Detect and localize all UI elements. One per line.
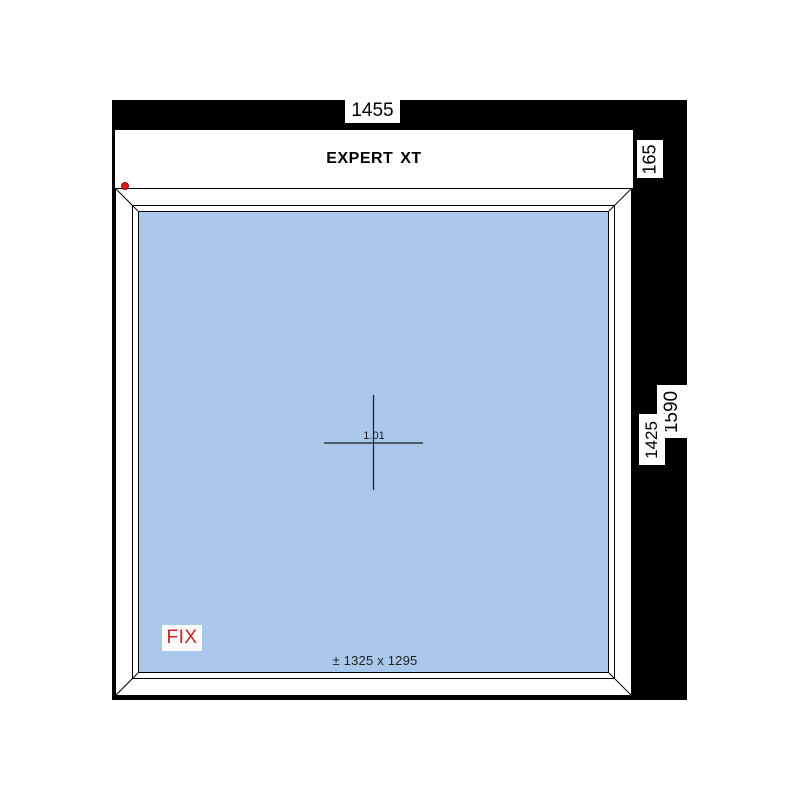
header-panel: EXPERT XT [115,130,633,188]
header-height-value: 165 [640,144,661,174]
drawing-page: EXPERT XT 1455 165 1590 1425 1.01 ± 1325 [0,0,800,800]
header-height-dimension[interactable]: 165 [637,140,663,178]
system-name-label: EXPERT XT [326,150,421,168]
position-number-label: 1.01 [352,430,396,442]
frame-height-value: 1425 [642,421,662,459]
window-frame[interactable] [115,188,632,696]
glass-pane[interactable] [138,211,609,673]
total-width-dimension[interactable]: 1455 [345,98,400,123]
frame-height-dimension[interactable]: 1425 [639,414,665,465]
opening-type-label: FIX [166,627,197,649]
opening-type-badge: FIX [162,625,202,651]
total-width-value: 1455 [351,100,393,122]
glass-size-label: ± 1325 x 1295 [325,654,425,668]
drawing-region: EXPERT XT [112,100,687,700]
reference-point-marker-icon [121,182,129,190]
